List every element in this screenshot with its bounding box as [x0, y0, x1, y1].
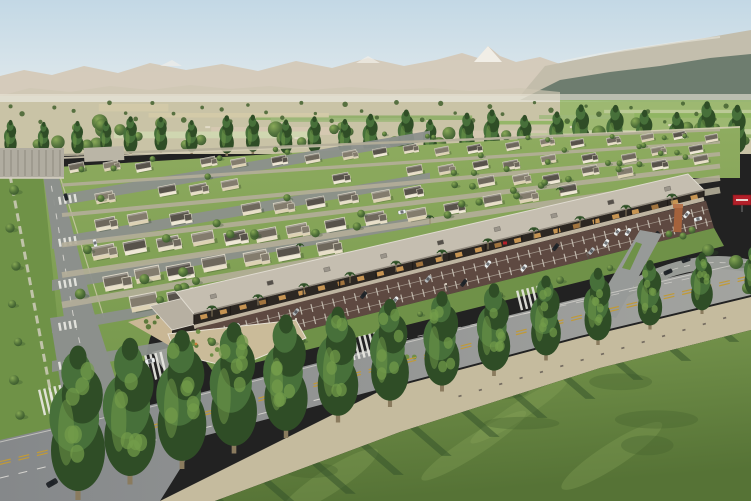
red-pylon-sign [733, 195, 751, 212]
aerial-rendering [0, 0, 751, 501]
scene [0, 0, 751, 501]
